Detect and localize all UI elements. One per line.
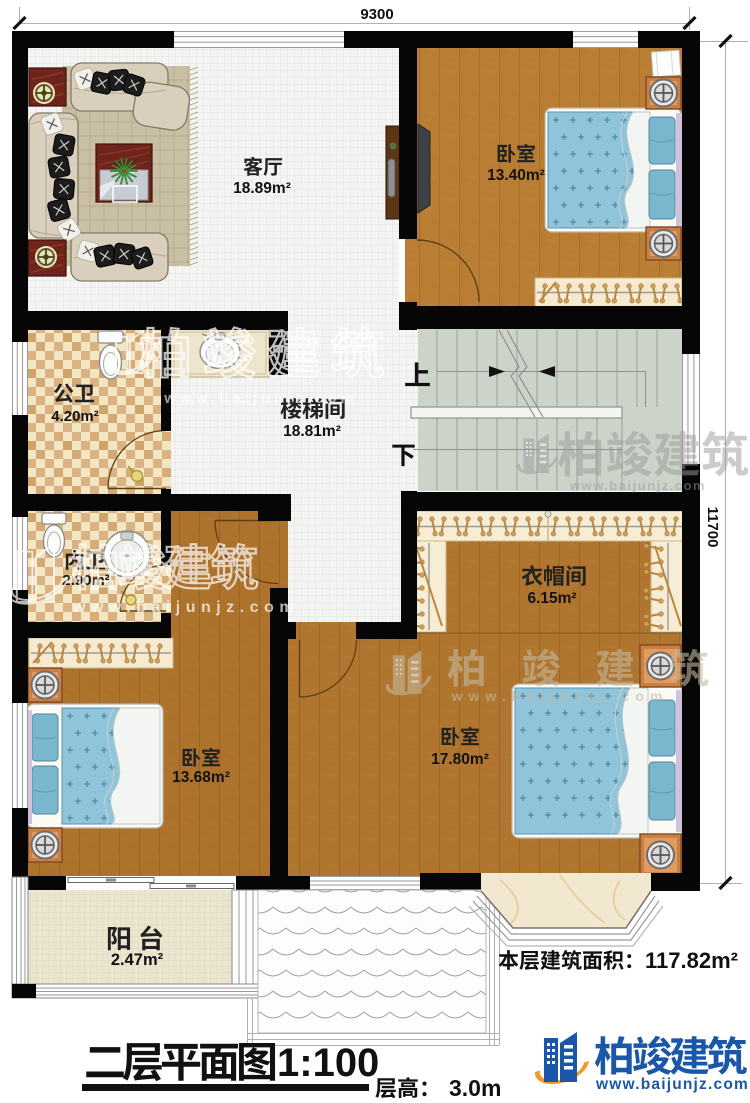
svg-text:6.15m²: 6.15m²	[527, 590, 576, 607]
svg-text:11700: 11700	[704, 507, 721, 548]
svg-text:3.0m: 3.0m	[449, 1075, 501, 1101]
svg-text:www.baijunjz.com: www.baijunjz.com	[595, 1076, 749, 1093]
svg-text:18.89m²: 18.89m²	[233, 180, 291, 197]
svg-text:www.baijunjz.com: www.baijunjz.com	[163, 390, 357, 407]
svg-text:www.baijunjz.com: www.baijunjz.com	[569, 478, 706, 493]
svg-text:1:100: 1:100	[277, 1041, 379, 1085]
svg-text:13.68m²: 13.68m²	[172, 769, 230, 786]
svg-text:117.82m²: 117.82m²	[645, 948, 738, 973]
svg-text:9300: 9300	[360, 6, 393, 23]
svg-text:13.40m²: 13.40m²	[487, 167, 545, 184]
svg-text:4.20m²: 4.20m²	[51, 408, 99, 425]
svg-text:18.81m²: 18.81m²	[283, 423, 341, 440]
svg-text:17.80m²: 17.80m²	[431, 751, 489, 768]
svg-text:www.baijunjz.com: www.baijunjz.com	[451, 688, 669, 704]
svg-text:2.47m²: 2.47m²	[111, 951, 164, 969]
svg-text:www.baijunjz.com: www.baijunjz.com	[72, 599, 299, 616]
